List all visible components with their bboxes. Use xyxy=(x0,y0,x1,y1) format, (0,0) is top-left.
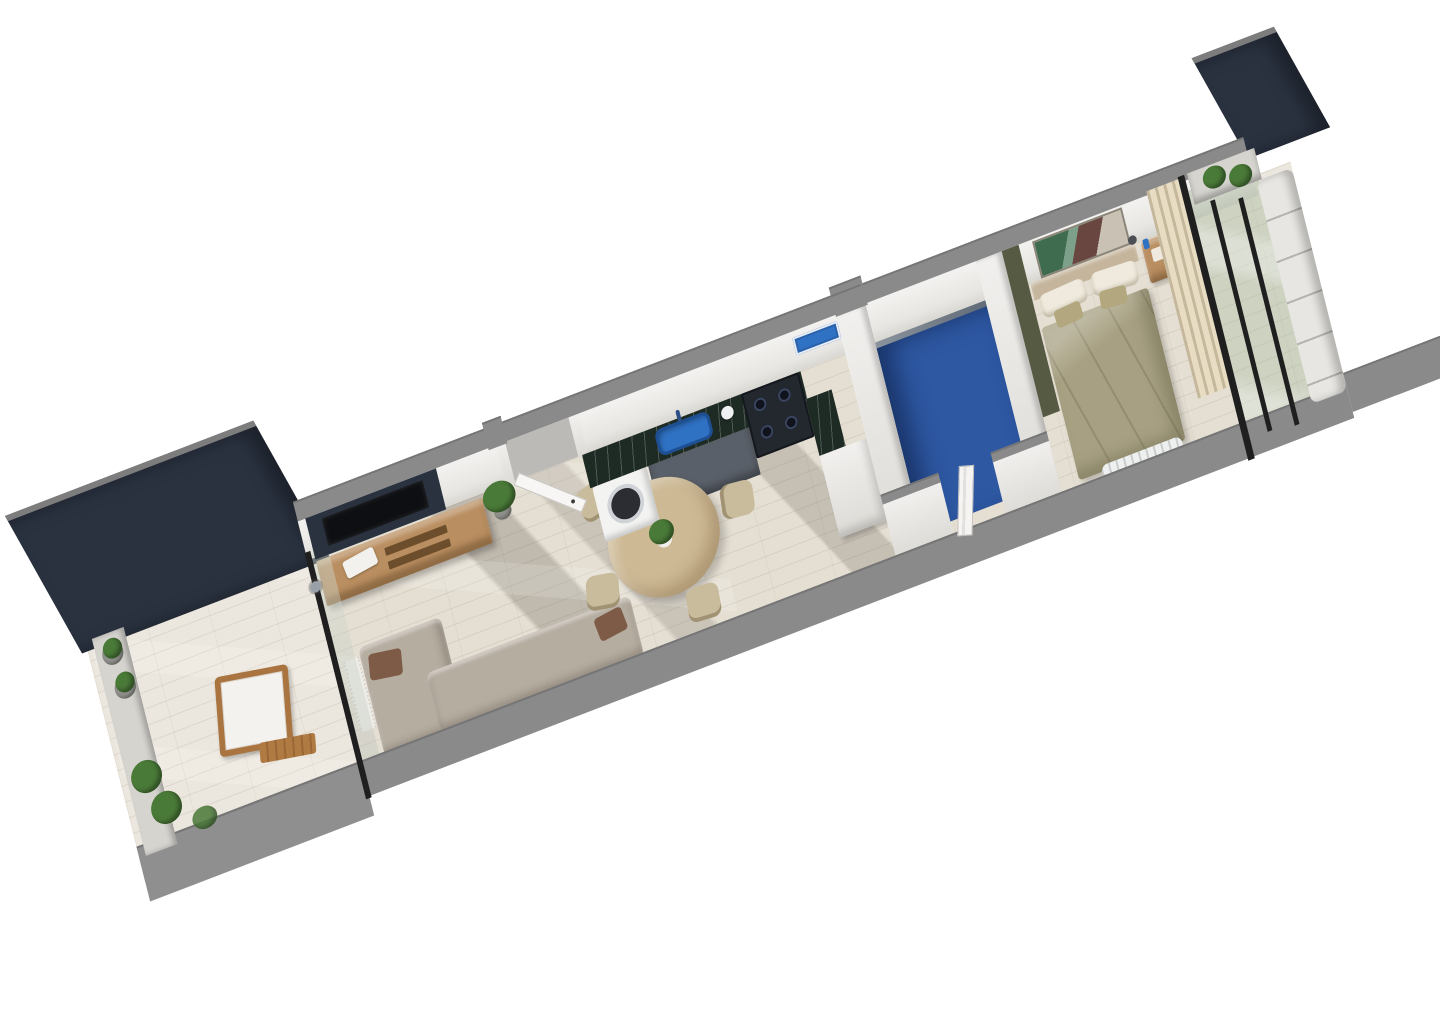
neighbor-wall-stub-east xyxy=(1343,319,1440,412)
terrace-east-navy-panel xyxy=(1192,27,1330,159)
dining-chair xyxy=(585,571,620,612)
bathroom-door xyxy=(957,465,974,537)
floor-plan-canvas xyxy=(0,0,1440,1019)
apartment-floor-plan xyxy=(100,181,1353,874)
